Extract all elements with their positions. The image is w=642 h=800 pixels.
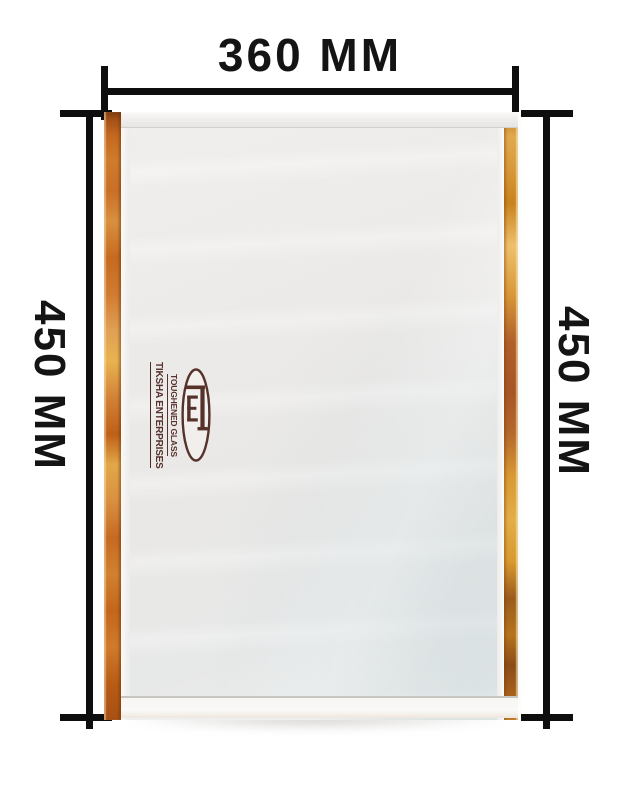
glass-panel: TIKSHA ENTERPRISES TOUGHENED GLASS (104, 112, 521, 720)
brand-tagline-vertical: TOUGHENED GLASS (167, 374, 179, 457)
glass-edge-white-right (518, 112, 521, 720)
glass-bottom-edge (121, 696, 518, 718)
te-monogram-oval (181, 368, 211, 462)
glass-edge-highlight-left (121, 112, 130, 720)
dimension-left-line (86, 112, 93, 729)
glass-edge-highlight-right (497, 112, 504, 720)
dimension-right-label: 450 MM (550, 306, 596, 477)
dimension-top-label: 360 MM (103, 26, 517, 84)
copper-tape-left (104, 112, 121, 720)
dimension-right-cap-top (521, 110, 573, 117)
brand-name-vertical: TIKSHA ENTERPRISES (150, 362, 165, 469)
dimension-right-cap-bottom (521, 714, 573, 721)
product-photo: 360 MM 450 MM 450 MM TIKSHA ENTERPRISES … (0, 0, 642, 800)
glass-top-edge (121, 112, 518, 128)
oval-border (183, 370, 210, 461)
dimension-left-label: 450 MM (26, 300, 72, 471)
copper-tape-right (504, 112, 518, 720)
brand-logo: TIKSHA ENTERPRISES TOUGHENED GLASS (150, 361, 211, 469)
dimension-top-line (103, 88, 517, 95)
